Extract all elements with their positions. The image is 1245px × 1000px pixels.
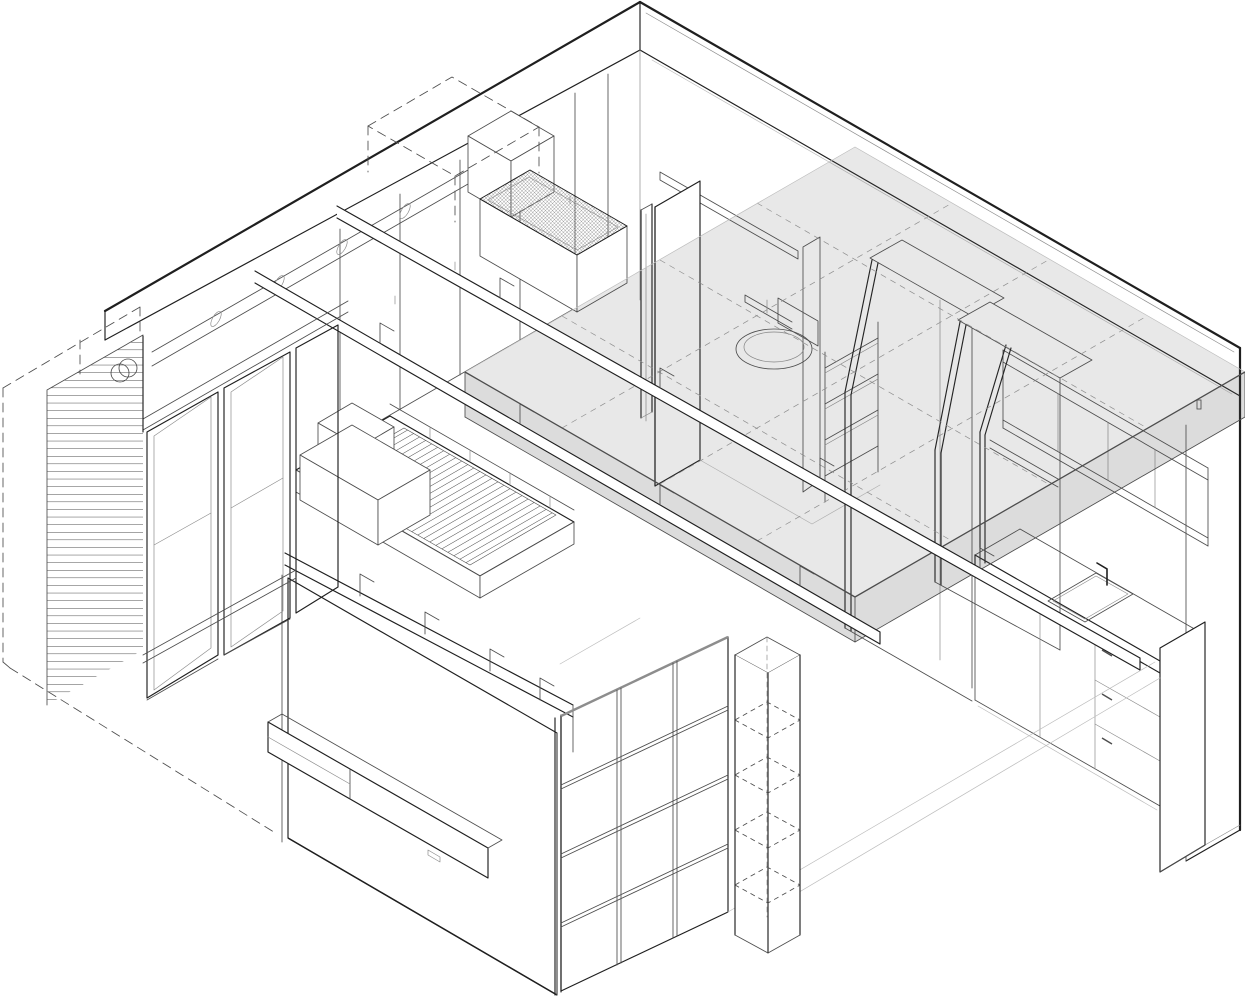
kitchen-end-panel-right — [1160, 622, 1205, 872]
louver-screen — [47, 335, 143, 705]
grid-shelving-wall — [555, 637, 728, 995]
door-lintel — [143, 301, 348, 430]
loft-storage-boxes — [300, 403, 430, 545]
drawer-handles — [1102, 650, 1112, 744]
axonometric-drawing: Axonometric cutaway line drawing of a sm… — [0, 0, 1245, 1000]
dashed-shelf-tower — [735, 637, 800, 953]
kitchen-cabinets — [975, 567, 1160, 810]
tv-wall — [268, 553, 573, 995]
drawing-canvas: Axonometric cutaway line drawing of a sm… — [0, 0, 1245, 1000]
skylight-grille — [480, 170, 627, 312]
floor-lines — [560, 618, 1160, 926]
kitchen-drawers — [1095, 650, 1160, 761]
door-sill — [143, 570, 296, 700]
